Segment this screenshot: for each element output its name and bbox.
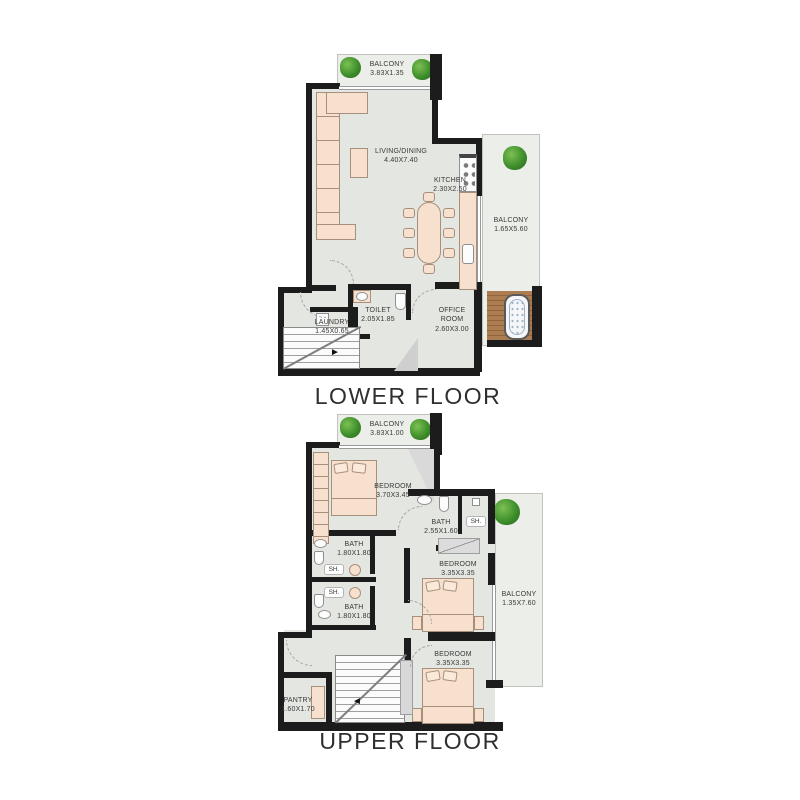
wall bbox=[488, 489, 495, 544]
wall bbox=[532, 286, 542, 346]
room-label-shower-mid: SH. bbox=[466, 516, 486, 527]
room-label-balcony-right: BALCONY 1.65X5.60 bbox=[482, 216, 540, 235]
sofa bbox=[326, 92, 368, 114]
dining-chair bbox=[403, 248, 415, 258]
upper-floor-title: UPPER FLOOR bbox=[300, 728, 520, 755]
door-panel bbox=[400, 660, 413, 715]
sofa bbox=[316, 224, 356, 240]
room-dims: 1.65X5.60 bbox=[482, 225, 540, 234]
tv-console bbox=[350, 148, 368, 178]
room-label-bath-mid: BATH 2.55X1.60 bbox=[416, 518, 466, 537]
room-label-laundry: LAUNDRY 1.45X0.65 bbox=[310, 318, 354, 337]
room-dims: 2.30X2.50 bbox=[426, 185, 474, 194]
window bbox=[339, 445, 431, 449]
dining-chair bbox=[403, 228, 415, 238]
room-dims: 1.80X1.80 bbox=[334, 549, 374, 558]
floor-plan-sheet: ► BALCONY 3.83X1.35 LIVING/DINING 4.40X7… bbox=[0, 0, 800, 800]
wall bbox=[306, 83, 312, 291]
room-label-bedroom2: BEDROOM 3.35X3.35 bbox=[425, 560, 491, 579]
nightstand bbox=[474, 708, 484, 722]
stair-direction-arrow: ◄ bbox=[352, 697, 362, 707]
room-label-bath-a: BATH 1.80X1.80 bbox=[334, 540, 374, 559]
closet bbox=[438, 538, 480, 554]
room-label-shower-b: SH. bbox=[324, 587, 344, 598]
room-name: LAUNDRY bbox=[310, 318, 354, 327]
dining-chair bbox=[443, 228, 455, 238]
kitchen-counter bbox=[459, 192, 477, 290]
wall bbox=[306, 83, 340, 89]
shower-drain bbox=[472, 498, 480, 506]
wall bbox=[280, 672, 332, 678]
pillow bbox=[351, 462, 366, 474]
toilet-fixture bbox=[314, 551, 324, 565]
toilet-fixture bbox=[314, 594, 324, 608]
kitchen-sink bbox=[462, 244, 474, 264]
window bbox=[477, 196, 481, 290]
room-dims: 3.83X1.35 bbox=[337, 69, 437, 78]
toilet-fixture bbox=[439, 496, 449, 512]
room-label-balcony-top: BALCONY 3.83X1.00 bbox=[337, 420, 437, 439]
wall bbox=[278, 632, 284, 731]
room-label-bath-b: BATH 1.80X1.80 bbox=[334, 603, 374, 622]
room-label-kitchen: KITCHEN 2.30X2.50 bbox=[426, 176, 474, 195]
wall bbox=[278, 368, 480, 376]
pillow bbox=[442, 670, 457, 682]
room-label-shower-a: SH. bbox=[324, 564, 344, 575]
room-name: KITCHEN bbox=[426, 176, 474, 185]
room-label-bedroom3: BEDROOM 3.35X3.35 bbox=[420, 650, 486, 669]
room-name: BEDROOM bbox=[425, 560, 491, 569]
dining-chair bbox=[443, 208, 455, 218]
room-dims: 2.05X1.85 bbox=[352, 315, 404, 324]
wall bbox=[404, 548, 410, 603]
room-name: BATH bbox=[334, 603, 374, 612]
room-dims: 1.35X7.60 bbox=[495, 599, 543, 608]
wardrobe bbox=[313, 452, 329, 544]
pillow bbox=[442, 580, 457, 592]
jacuzzi-tub bbox=[504, 294, 530, 340]
room-name: BATH bbox=[334, 540, 374, 549]
room-name: LIVING/DINING bbox=[368, 147, 434, 156]
room-label-bedroom1: BEDROOM 3.70X3.45 bbox=[360, 482, 426, 501]
room-dims: 1.60X1.70 bbox=[280, 705, 316, 714]
wall bbox=[432, 88, 438, 144]
room-name: OFFICE ROOM bbox=[430, 306, 474, 325]
room-dims: 2.55X1.60 bbox=[416, 527, 466, 536]
room-name: BATH bbox=[416, 518, 466, 527]
room-name: BALCONY bbox=[337, 420, 437, 429]
room-label-office: OFFICE ROOM 2.60X3.00 bbox=[430, 306, 474, 334]
wall bbox=[312, 625, 376, 630]
plant-icon bbox=[494, 499, 520, 525]
window bbox=[339, 86, 431, 90]
wall bbox=[432, 138, 482, 144]
sink bbox=[356, 292, 368, 301]
nightstand bbox=[412, 708, 422, 722]
wall bbox=[306, 442, 312, 638]
room-dims: 3.70X3.45 bbox=[360, 491, 426, 500]
dining-chair bbox=[403, 208, 415, 218]
room-dims: 3.35X3.35 bbox=[420, 659, 486, 668]
sink bbox=[318, 610, 331, 619]
room-dims: 4.40X7.40 bbox=[368, 156, 434, 165]
room-label-living-dining: LIVING/DINING 4.40X7.40 bbox=[368, 147, 434, 166]
wall bbox=[326, 672, 332, 727]
room-dims: 2.60X3.00 bbox=[430, 325, 474, 334]
wall bbox=[312, 577, 376, 582]
plant-icon bbox=[503, 146, 527, 170]
room-name: BALCONY bbox=[482, 216, 540, 225]
room-label-pantry: PANTRY 1.60X1.70 bbox=[280, 696, 316, 715]
dining-chair bbox=[423, 264, 435, 274]
sink bbox=[314, 539, 327, 548]
room-name: BALCONY bbox=[337, 60, 437, 69]
wall bbox=[474, 282, 482, 372]
nightstand bbox=[474, 616, 484, 630]
shower-head bbox=[349, 564, 361, 576]
room-name: BEDROOM bbox=[420, 650, 486, 659]
wall bbox=[428, 632, 495, 641]
sofa bbox=[316, 92, 340, 240]
room-name: TOILET bbox=[352, 306, 404, 315]
room-dims: 3.35X3.35 bbox=[425, 569, 491, 578]
wall bbox=[487, 340, 542, 347]
room-label-toilet: TOILET 2.05X1.85 bbox=[352, 306, 404, 325]
room-name: BEDROOM bbox=[360, 482, 426, 491]
stair-direction-arrow: ► bbox=[330, 348, 340, 358]
wall bbox=[406, 284, 411, 320]
wall bbox=[486, 680, 503, 688]
dining-chair bbox=[443, 248, 455, 258]
room-name: PANTRY bbox=[280, 696, 316, 705]
room-dims: 1.80X1.80 bbox=[334, 612, 374, 621]
dining-table bbox=[417, 202, 441, 264]
room-dims: 1.45X0.65 bbox=[310, 327, 354, 336]
wall bbox=[306, 442, 340, 448]
room-dims: 3.83X1.00 bbox=[337, 429, 437, 438]
room-label-balcony-top: BALCONY 3.83X1.35 bbox=[337, 60, 437, 79]
shower-head bbox=[349, 587, 361, 599]
room-name: BALCONY bbox=[495, 590, 543, 599]
lower-floor-title: LOWER FLOOR bbox=[298, 383, 518, 410]
room-label-balcony-right: BALCONY 1.35X7.60 bbox=[495, 590, 543, 609]
